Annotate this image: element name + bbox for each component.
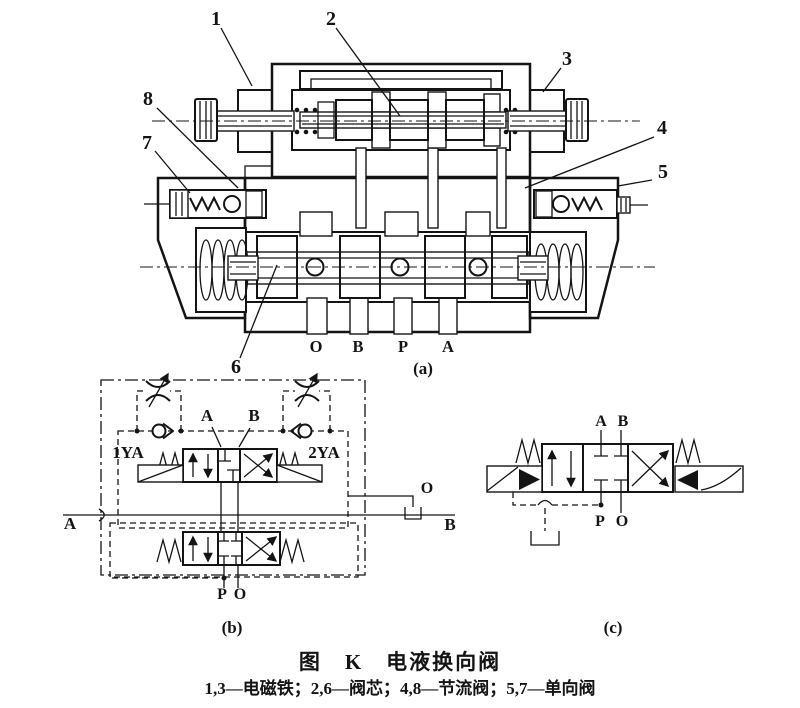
b-port-p-bottom: P	[217, 586, 227, 603]
port-b-label: B	[352, 337, 363, 356]
right-check-valve	[534, 190, 648, 218]
solenoid-2ya-label: 2YA	[308, 443, 340, 462]
figure-page: 1 2 3 4 5 6 7 8 O B P A (a)	[0, 0, 800, 708]
b-port-a-top: A	[201, 406, 214, 425]
section-b-schematic: A B 1YA 2YA A B O P O (b)	[63, 374, 456, 637]
c-left-solenoid	[487, 466, 542, 492]
callout-7: 7	[142, 132, 152, 154]
right-throttle-check	[281, 374, 333, 439]
c-port-b-label: B	[618, 413, 629, 430]
main-valve-symbol	[157, 532, 304, 565]
c-right-solenoid	[675, 466, 743, 492]
callout-1: 1	[211, 8, 221, 30]
c-port-p-label: P	[595, 513, 605, 530]
port-labels-a: O B P A	[310, 337, 454, 356]
panel-c-label: (c)	[604, 618, 623, 637]
b-port-o-bottom: O	[234, 586, 246, 603]
callout-8: 8	[143, 88, 153, 110]
pilot-valve-symbol	[138, 449, 322, 482]
port-p-label: P	[398, 337, 408, 356]
b-port-a-side: A	[64, 514, 77, 533]
callout-2: 2	[326, 8, 336, 30]
b-port-o-side: O	[421, 480, 433, 497]
b-port-b-top: B	[248, 406, 259, 425]
section-c-symbol: A B P O (c)	[487, 413, 743, 637]
caption-title: 图 K 电液换向阀	[299, 650, 501, 674]
solenoid-1ya-label: 1YA	[112, 443, 144, 462]
section-a-cross-section: 1 2 3 4 5 6 7 8 O B P A (a)	[140, 8, 668, 378]
callout-4: 4	[657, 117, 667, 139]
b-port-b-side: B	[444, 515, 455, 534]
c-port-a-label: A	[595, 413, 607, 430]
panel-b-label: (b)	[222, 618, 243, 637]
caption-legend: 1,3—电磁铁；2,6—阀芯；4,8—节流阀；5,7—单向阀	[205, 678, 596, 698]
valve-figure: 1 2 3 4 5 6 7 8 O B P A (a)	[0, 0, 800, 708]
panel-a-label: (a)	[413, 359, 433, 378]
port-a-label: A	[442, 337, 454, 356]
caption: 图 K 电液换向阀 1,3—电磁铁；2,6—阀芯；4,8—节流阀；5,7—单向阀	[205, 650, 596, 698]
callout-6: 6	[231, 356, 241, 378]
callout-5: 5	[658, 161, 668, 183]
callout-3: 3	[562, 48, 572, 70]
port-o-label: O	[310, 337, 323, 356]
left-throttle-check	[135, 374, 184, 439]
c-valve-body	[516, 440, 700, 492]
main-bore-and-spool	[245, 212, 530, 334]
c-port-o-label: O	[616, 513, 628, 530]
left-check-valve	[144, 190, 266, 218]
